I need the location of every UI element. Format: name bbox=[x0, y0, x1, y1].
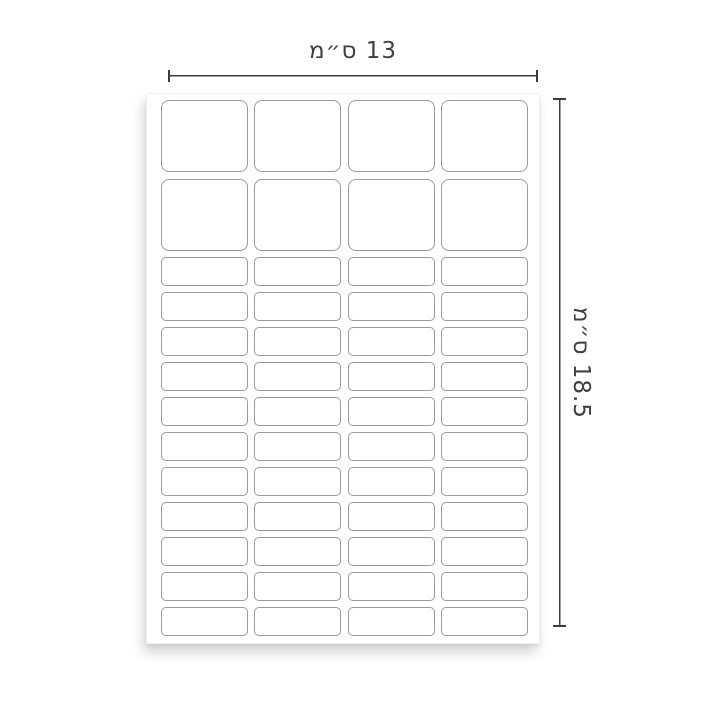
sticker-label-small bbox=[161, 537, 248, 566]
sticker-label-small bbox=[348, 572, 435, 601]
sticker-label-small bbox=[254, 362, 341, 391]
sticker-label-small bbox=[161, 362, 248, 391]
sticker-label-small bbox=[161, 467, 248, 496]
sticker-label-large bbox=[348, 179, 435, 251]
sticker-label-small bbox=[161, 257, 248, 286]
sticker-label-small bbox=[254, 432, 341, 461]
product-image: 13 ס״מ 18.5 ס״מ bbox=[0, 0, 720, 720]
sticker-label-small bbox=[254, 327, 341, 356]
sticker-label-small bbox=[254, 572, 341, 601]
sticker-label-small bbox=[161, 607, 248, 636]
sticker-label-small bbox=[348, 502, 435, 531]
sticker-label-large bbox=[441, 179, 528, 251]
sticker-label-small bbox=[441, 467, 528, 496]
sticker-label-small bbox=[348, 362, 435, 391]
sticker-label-small bbox=[441, 572, 528, 601]
sticker-label-small bbox=[161, 292, 248, 321]
height-dimension-label: 18.5 ס״מ bbox=[568, 307, 594, 419]
sticker-label-small bbox=[441, 502, 528, 531]
sticker-label-small bbox=[254, 257, 341, 286]
sticker-label-small bbox=[254, 292, 341, 321]
sticker-label-small bbox=[441, 537, 528, 566]
sticker-label-small bbox=[348, 397, 435, 426]
sticker-label-small bbox=[441, 607, 528, 636]
height-dimension-line bbox=[553, 98, 566, 627]
sticker-label-small bbox=[348, 607, 435, 636]
sticker-label-small bbox=[348, 327, 435, 356]
sticker-label-small bbox=[348, 292, 435, 321]
sticker-label-large bbox=[254, 100, 341, 172]
small-labels-grid bbox=[161, 257, 526, 636]
sticker-label-small bbox=[161, 397, 248, 426]
large-labels-grid bbox=[161, 100, 526, 251]
sticker-label-small bbox=[161, 432, 248, 461]
sticker-label-small bbox=[254, 467, 341, 496]
sticker-label-small bbox=[441, 432, 528, 461]
sticker-label-large bbox=[254, 179, 341, 251]
sticker-label-small bbox=[254, 397, 341, 426]
width-dimension-line bbox=[168, 70, 538, 82]
sticker-label-small bbox=[441, 362, 528, 391]
sticker-label-small bbox=[161, 327, 248, 356]
width-dimension-label: 13 ס״מ bbox=[168, 37, 538, 65]
sticker-label-small bbox=[441, 292, 528, 321]
sticker-label-small bbox=[254, 502, 341, 531]
sticker-label-small bbox=[348, 257, 435, 286]
sticker-label-large bbox=[441, 100, 528, 172]
sticker-label-small bbox=[161, 502, 248, 531]
sticker-label-small bbox=[161, 572, 248, 601]
sticker-sheet bbox=[146, 93, 540, 644]
sticker-label-large bbox=[348, 100, 435, 172]
sticker-label-small bbox=[348, 432, 435, 461]
sticker-label-small bbox=[441, 327, 528, 356]
sticker-label-small bbox=[348, 467, 435, 496]
sticker-label-small bbox=[348, 537, 435, 566]
sticker-label-small bbox=[254, 607, 341, 636]
sticker-label-small bbox=[441, 257, 528, 286]
sticker-label-small bbox=[441, 397, 528, 426]
sticker-label-large bbox=[161, 179, 248, 251]
sticker-label-small bbox=[254, 537, 341, 566]
sticker-label-large bbox=[161, 100, 248, 172]
